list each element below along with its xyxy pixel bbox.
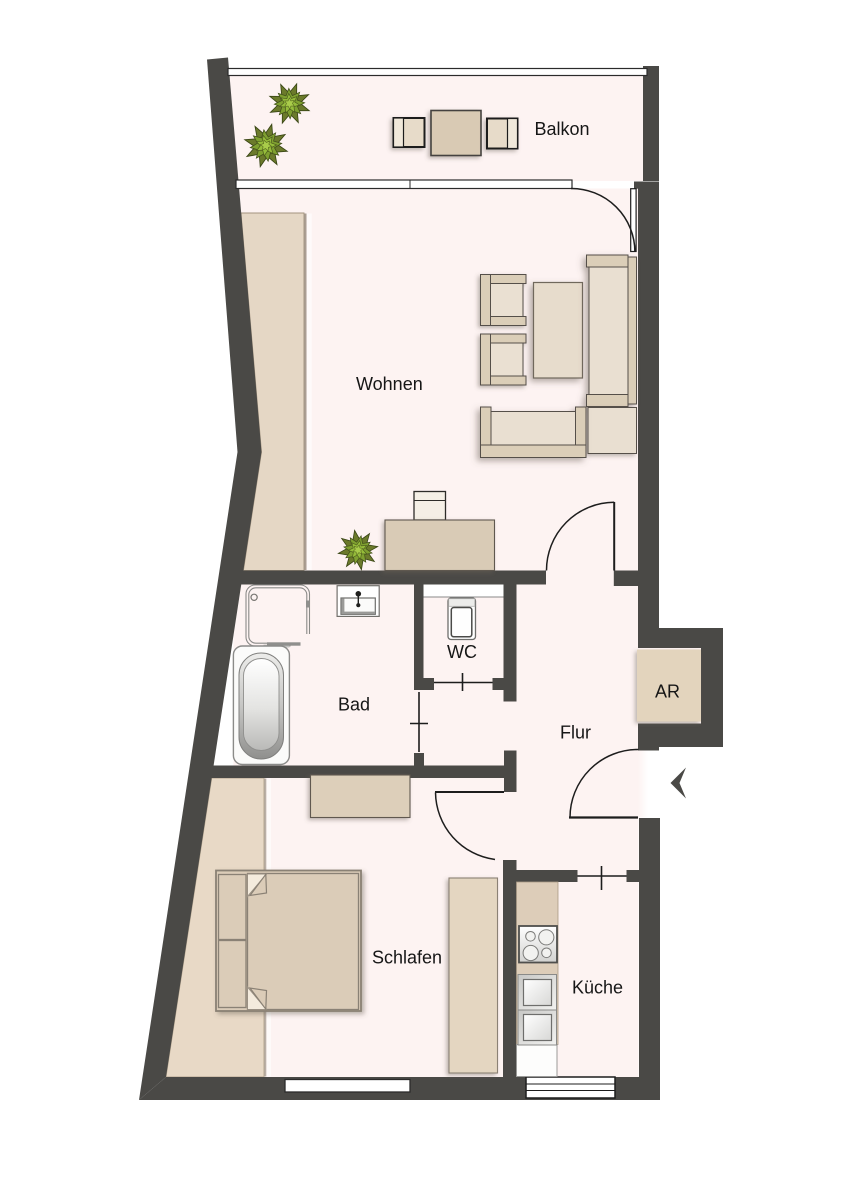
- svg-text:WC: WC: [447, 642, 477, 662]
- svg-text:Küche: Küche: [572, 978, 623, 998]
- svg-text:Wohnen: Wohnen: [356, 374, 423, 394]
- svg-text:AR: AR: [655, 682, 680, 702]
- svg-text:Flur: Flur: [560, 723, 591, 743]
- svg-text:Balkon: Balkon: [535, 119, 590, 139]
- svg-text:Schlafen: Schlafen: [372, 948, 442, 968]
- svg-text:Bad: Bad: [338, 695, 370, 715]
